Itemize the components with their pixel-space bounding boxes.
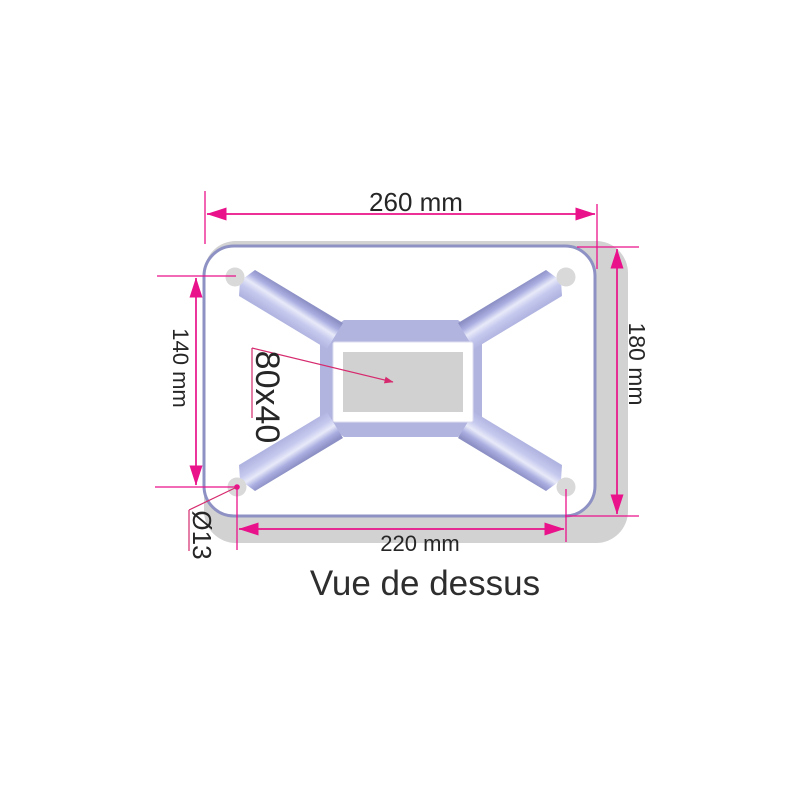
corner-hole-top-left xyxy=(226,268,245,287)
dimension-label-overall-height: 180 mm xyxy=(624,322,650,405)
dimension-label-hole-spacing-horizontal: 220 mm xyxy=(380,531,459,556)
dimension-label-hole-spacing-vertical: 140 mm xyxy=(168,328,193,407)
base-plate-top-view-drawing: 260 mm 180 mm 140 mm 220 mm 80x40 xyxy=(0,0,800,800)
dimension-label-overall-width: 260 mm xyxy=(369,187,463,217)
corner-hole-top-right xyxy=(557,268,576,287)
callout-label-hole-diameter: Ø13 xyxy=(187,510,217,559)
technical-drawing-page: 260 mm 180 mm 140 mm 220 mm 80x40 xyxy=(0,0,800,800)
drawing-caption: Vue de dessus xyxy=(310,564,540,603)
callout-label-tube-section: 80x40 xyxy=(248,351,286,444)
tube-socket-opening xyxy=(343,352,463,412)
